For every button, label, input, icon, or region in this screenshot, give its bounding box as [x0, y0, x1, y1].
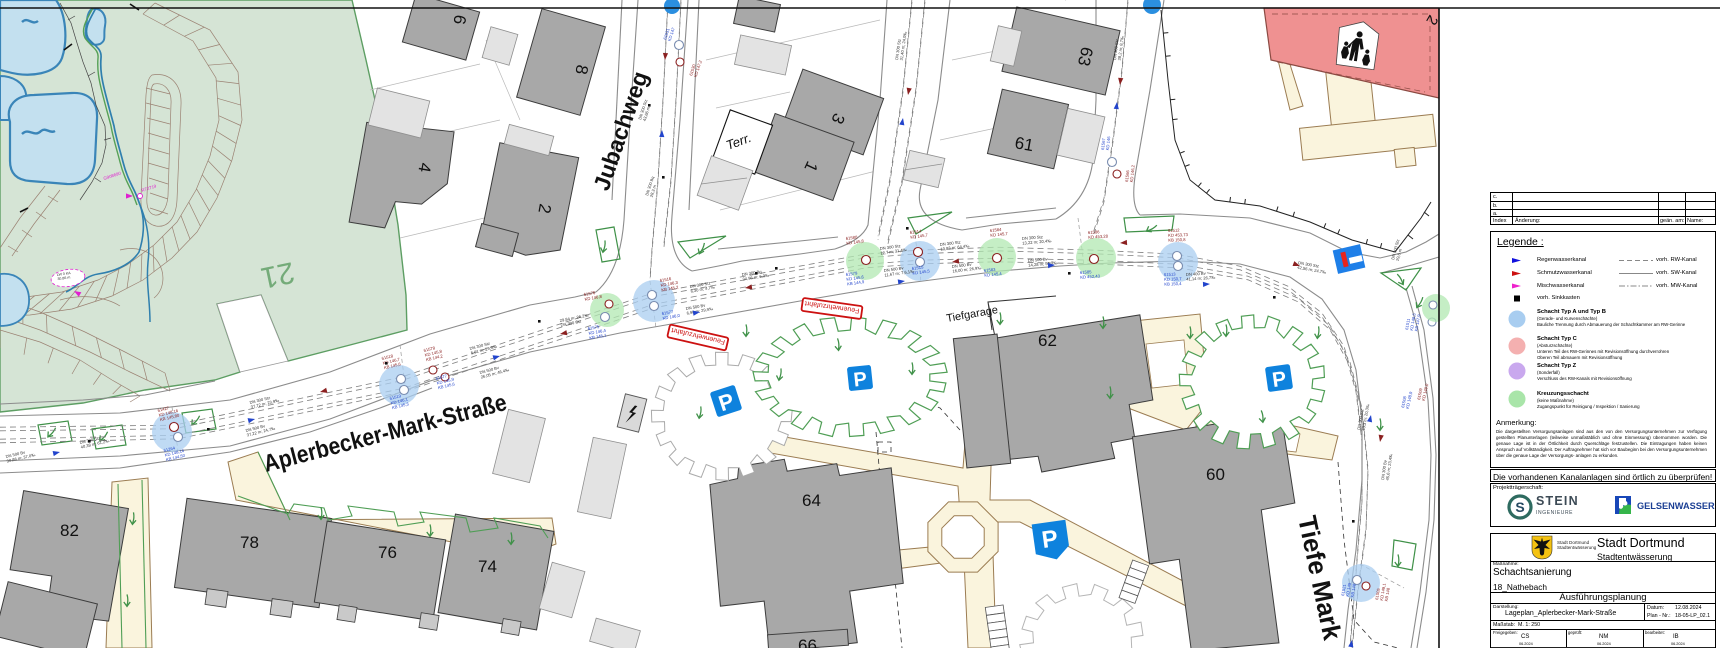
svg-text:41,14 m; 26,7‰: 41,14 m; 26,7‰ [1186, 275, 1215, 282]
svg-text:KD 147,2: KD 147,2 [693, 59, 703, 78]
svg-text:82: 82 [60, 521, 79, 540]
svg-text:64: 64 [802, 491, 821, 510]
svg-text:61: 61 [1013, 133, 1035, 155]
svg-text:78: 78 [240, 533, 259, 552]
svg-text:Tiefe Mark: Tiefe Mark [1292, 513, 1348, 643]
svg-text:45,58 m: 45,58 m [1063, 0, 1070, 1]
svg-text:P: P [852, 368, 868, 391]
svg-text:21: 21 [258, 255, 298, 294]
svg-text:KD 145,4: KD 145,4 [984, 271, 1003, 278]
svg-text:76: 76 [378, 543, 397, 562]
svg-text:60: 60 [1206, 465, 1225, 484]
svg-text:KB 150,4: KB 150,4 [1164, 281, 1182, 287]
svg-text:KB 150,8: KB 150,8 [1168, 237, 1186, 243]
svg-text:74: 74 [478, 557, 497, 576]
svg-text:KD 452,43: KD 452,43 [1080, 273, 1101, 279]
svg-text:62: 62 [1038, 331, 1057, 350]
svg-text:S: S [1515, 499, 1524, 515]
svg-text:66: 66 [798, 636, 817, 648]
